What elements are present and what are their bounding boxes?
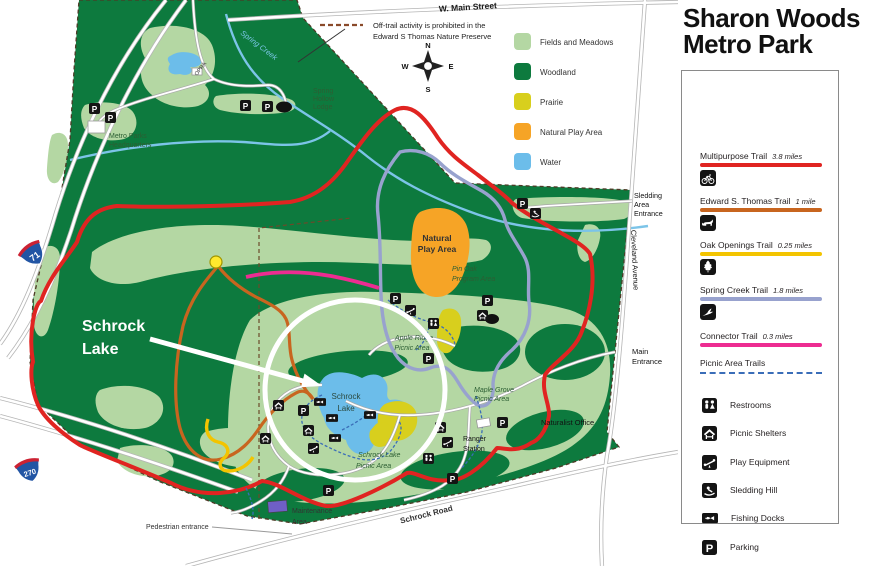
facility-label: Parking [730, 542, 759, 552]
fishing-dock-icon [326, 414, 338, 422]
trail-color-line [700, 252, 822, 256]
fishing-dock-icon [314, 398, 326, 406]
note-line-1: Off-trail activity is prohibited in the [373, 21, 485, 30]
parking-icon [323, 485, 334, 496]
compass-s: S [425, 85, 430, 94]
svg-text:Schrock Lake: Schrock Lake [358, 452, 401, 459]
facility-label: Play Equipment [730, 457, 790, 467]
restrooms-icon [428, 318, 439, 329]
label-w-main-street: W. Main Street [439, 0, 498, 14]
legend-spring-creek-trail: Spring Creek Trail1.8 miles [700, 285, 822, 325]
legend-picnic-area-trails-label: Picnic Area Trails [700, 358, 765, 368]
svg-text:Headquarters: Headquarters [109, 142, 152, 149]
svg-text:Maple Grove: Maple Grove [474, 387, 514, 394]
svg-text:Entrance: Entrance [634, 209, 663, 218]
title-line-1: Sharon Woods [683, 5, 860, 31]
picnic-trails-dashed-line [700, 372, 822, 374]
restrooms-icon [423, 453, 434, 464]
label-spring-hollow-lodge: Spring Hollow Lodge [313, 88, 335, 111]
svg-text:Lodge: Lodge [313, 104, 333, 111]
svg-text:Spring: Spring [313, 88, 333, 95]
sledding-icon [530, 208, 541, 219]
legend-sledding-hill: Sledding Hill [702, 482, 777, 498]
svg-text:Picnic Area: Picnic Area [356, 463, 391, 470]
facility-label: Sledding Hill [730, 485, 777, 495]
parking-icon [390, 293, 401, 304]
legend-edward-thomas-trail: Edward S. Thomas Trail1 mile [700, 196, 822, 236]
annotation-label-2: Lake [82, 341, 119, 358]
svg-text:Lake: Lake [337, 404, 355, 413]
svg-text:Natural: Natural [422, 233, 451, 243]
label-sledding-entrance: Sledding Area Entrance [634, 191, 663, 218]
parking-icon [105, 112, 116, 123]
svg-text:Main: Main [632, 347, 648, 356]
legend-restrooms: Restrooms [702, 397, 771, 413]
trail-color-line [700, 163, 822, 167]
trail-name: Edward S. Thomas Trail [700, 196, 791, 206]
svg-text:Area: Area [292, 519, 307, 526]
svg-text:Area: Area [634, 200, 649, 209]
trail-distance: 1 mile [791, 197, 816, 206]
maintenance-building [268, 500, 288, 513]
svg-text:Entrance: Entrance [632, 357, 662, 366]
oak-leaf-icon [700, 259, 716, 275]
parking-icon [262, 101, 273, 112]
play-equipment-icon [442, 437, 453, 448]
bird-icon [700, 304, 716, 320]
headquarters-building [88, 121, 105, 133]
compass-e: E [448, 62, 453, 71]
trail-distance: 0.3 miles [758, 332, 793, 341]
facility-label: Fishing Docks [731, 513, 784, 523]
svg-text:Play Area: Play Area [418, 244, 457, 254]
park-map: P [0, 0, 678, 566]
label-naturalist-office: Naturalist Office [541, 418, 594, 427]
legend-play-equipment: Play Equipment [702, 454, 790, 470]
parking-icon [482, 295, 493, 306]
svg-text:Hollow: Hollow [313, 96, 335, 103]
svg-text:Sledding: Sledding [634, 191, 662, 200]
legend-picnic-shelters: Picnic Shelters [702, 425, 786, 441]
legend-oak-openings-trail: Oak Openings Trail0.25 miles [700, 240, 822, 280]
restrooms-icon [702, 398, 717, 413]
fishing-dock-icon [329, 434, 341, 442]
parking-icon [89, 103, 100, 114]
label-natural-play-area: Natural Play Area [418, 233, 457, 254]
fields-label: Fields and Meadows [540, 38, 613, 47]
legend-fishing-docks: Fishing Docks [702, 510, 784, 526]
water-swatch [514, 153, 531, 170]
picnic-shelter-icon [477, 310, 488, 321]
picnic-shelter-icon [273, 400, 284, 411]
legend-parking: Parking [702, 539, 759, 555]
compass-w: W [401, 62, 409, 71]
sharon-woods-map-screenshot: P [0, 0, 888, 566]
parking-icon [423, 353, 434, 364]
fox-icon [700, 215, 716, 231]
legend-multipurpose-trail: Multipurpose Trail3.8 miles [700, 151, 822, 191]
title-line-2: Metro Park [683, 31, 860, 57]
svg-text:Picnic Area: Picnic Area [394, 345, 429, 352]
natural-play-swatch [514, 123, 531, 140]
compass-rose: N S W E [401, 41, 453, 94]
trail-distance: 0.25 miles [773, 241, 812, 250]
legend-panel: Sharon Woods Metro Park Multipurpose Tra… [678, 0, 888, 566]
play-equipment-icon [702, 455, 717, 470]
trail-name: Spring Creek Trail [700, 285, 768, 295]
legend-box: Multipurpose Trail3.8 miles Edward S. Th… [681, 70, 839, 524]
water-label: Water [540, 158, 561, 167]
land-legend: Fields and Meadows Woodland Prairie Natu… [514, 33, 613, 170]
label-pedestrian-entrance: Pedestrian entrance [146, 524, 209, 531]
trail-distance: 1.8 miles [768, 286, 803, 295]
fields-swatch [514, 33, 531, 50]
trail-color-line [700, 343, 822, 347]
parking-icon [447, 473, 458, 484]
facility-label: Restrooms [730, 400, 771, 410]
fishing-icon [702, 513, 718, 524]
facility-label: Picnic Shelters [730, 428, 786, 438]
label-cleveland-avenue: Cleveland Avenue [629, 230, 641, 291]
natural-play-label: Natural Play Area [540, 128, 603, 137]
picnic-shelter-icon [303, 425, 314, 436]
woodland-swatch [514, 63, 531, 80]
sledding-icon [702, 483, 717, 498]
parking-icon [517, 198, 528, 209]
svg-text:Picnic Area: Picnic Area [474, 396, 509, 403]
svg-text:Pin Oak: Pin Oak [452, 266, 477, 273]
svg-text:Station: Station [463, 446, 485, 453]
picnic-shelter-icon [702, 426, 717, 441]
bike-icon [700, 170, 716, 186]
woodland-label: Woodland [540, 68, 576, 77]
annotation-label-1: Schrock [82, 318, 145, 335]
note-line-2: Edward S Thomas Nature Preserve [373, 32, 491, 41]
trail-name: Oak Openings Trail [700, 240, 773, 250]
trail-distance: 3.8 miles [767, 152, 802, 161]
parking-icon [298, 405, 309, 416]
svg-text:Ranger: Ranger [463, 436, 487, 443]
prairie-label: Prairie [540, 98, 564, 107]
legend-connector-trail: Connector Trail0.3 miles [700, 331, 822, 347]
observation-deck-icon [210, 256, 222, 268]
svg-text:Metro Parks: Metro Parks [109, 133, 147, 140]
prairie-swatch [514, 93, 531, 110]
svg-text:Maintenance: Maintenance [292, 508, 332, 515]
fishing-dock-icon [364, 411, 376, 419]
compass-n: N [425, 41, 430, 50]
spring-hollow-lodge-building [276, 102, 292, 113]
i270-shield: 270 [13, 456, 45, 486]
parking-icon [240, 100, 251, 111]
parking-icon [702, 540, 717, 555]
svg-text:Schrock: Schrock [332, 392, 362, 401]
parking-icon [497, 417, 508, 428]
trail-color-line [700, 297, 822, 301]
svg-text:Program Area: Program Area [452, 276, 495, 283]
ranger-station-building [476, 418, 490, 428]
picnic-shelter-icon [260, 433, 271, 444]
trail-name: Multipurpose Trail [700, 151, 767, 161]
label-main-entrance: Main Entrance [632, 347, 662, 366]
page-title: Sharon Woods Metro Park [683, 5, 860, 57]
trail-color-line [700, 208, 822, 212]
trail-name: Connector Trail [700, 331, 758, 341]
play-equipment-icon [308, 443, 319, 454]
